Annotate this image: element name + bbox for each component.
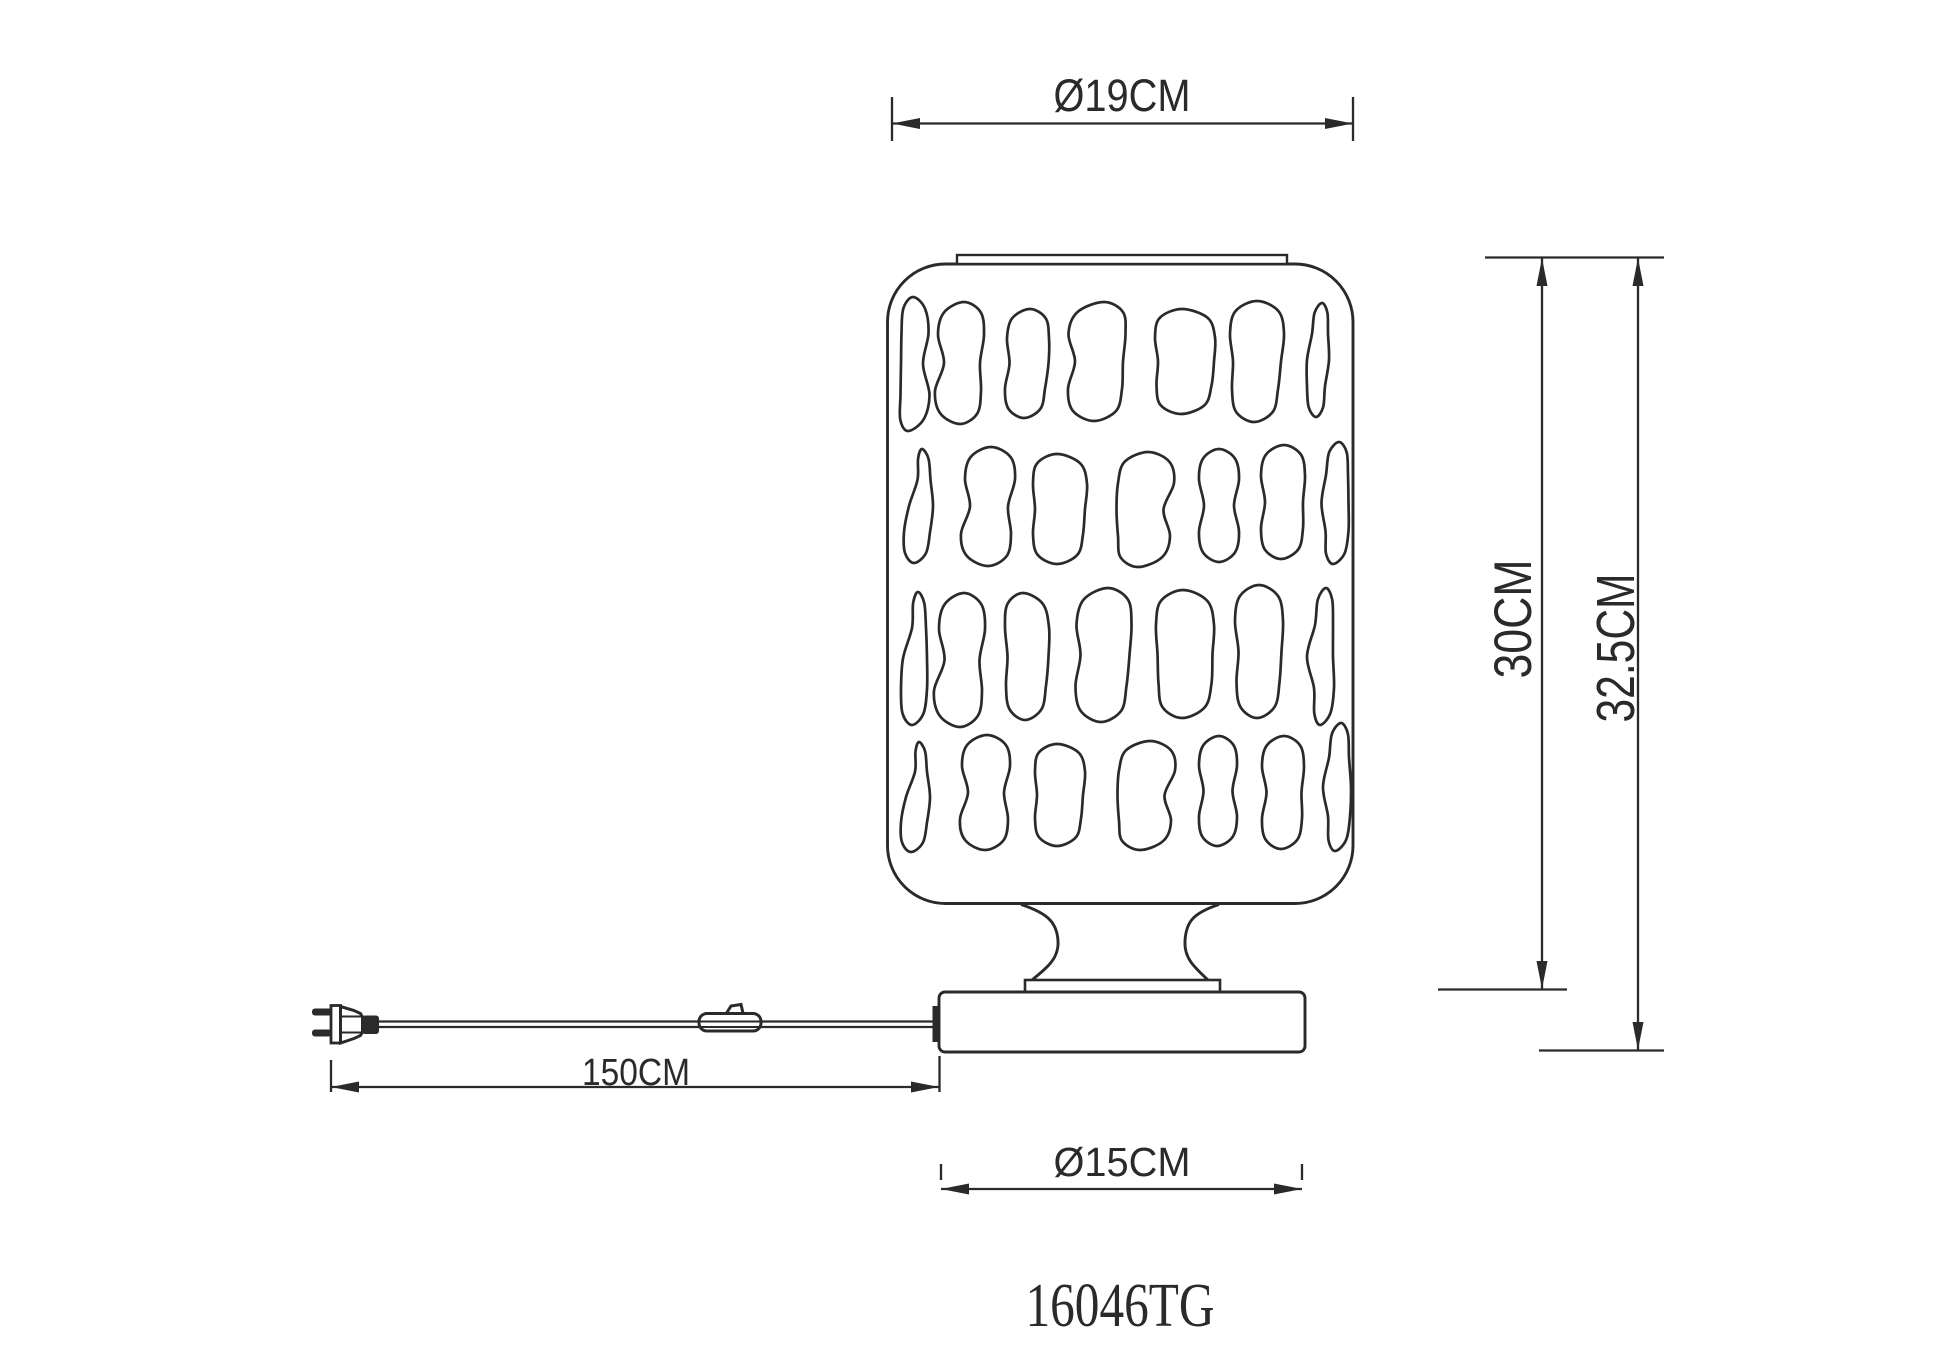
svg-text:Ø15CM: Ø15CM	[1054, 1139, 1191, 1185]
svg-text:16046TG: 16046TG	[1026, 1272, 1215, 1340]
svg-text:Ø19CM: Ø19CM	[1054, 70, 1191, 121]
svg-text:150CM: 150CM	[582, 1052, 690, 1094]
svg-text:32.5CM: 32.5CM	[1586, 574, 1646, 723]
svg-text:30CM: 30CM	[1484, 560, 1543, 679]
